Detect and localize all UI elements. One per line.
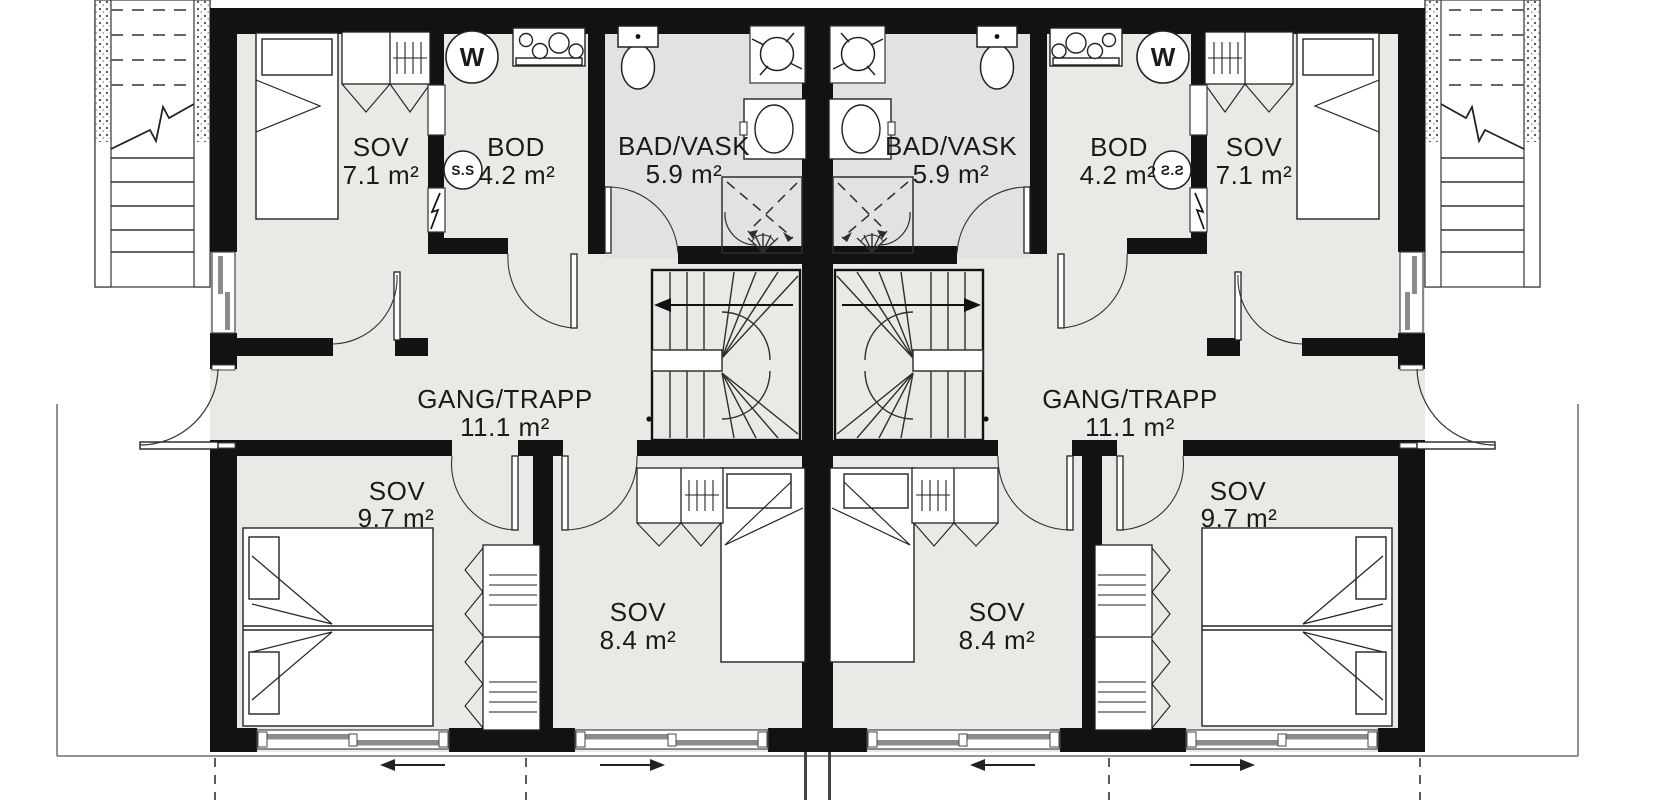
room-area-bad-left: 5.9 m²	[646, 159, 723, 189]
wall-niche	[428, 85, 445, 135]
room-label-sov-bottomleft: SOV	[369, 476, 426, 506]
room-area-sov-top-right: 7.1 m²	[1216, 160, 1293, 190]
room-area-gang-right: 11.1 m²	[1085, 412, 1175, 442]
room-label-bod-right: BOD	[1090, 132, 1148, 162]
boundary-dashed-lines	[215, 758, 526, 800]
electrical-panel-icon	[428, 188, 445, 232]
bed-double	[243, 528, 433, 726]
room-area-gang-left: 11.1 m²	[460, 412, 550, 442]
room-label-bad-left: BAD/VASK	[618, 131, 750, 161]
room-label-sov-top-left: SOV	[353, 132, 410, 162]
room-area-sov-mid-right: 8.4 m²	[959, 625, 1036, 655]
vent-fan-icon	[750, 26, 805, 83]
room-label-gang-right: GANG/TRAPP	[1042, 384, 1217, 414]
room-label-bod-left: BOD	[487, 132, 545, 162]
terrace-divider-fence	[804, 752, 807, 800]
bottom-window-left	[257, 730, 449, 749]
room-label-gang-left: GANG/TRAPP	[417, 384, 592, 414]
water-heater-label-right: W	[1151, 42, 1176, 72]
room-area-bod-right: 4.2 m²	[1080, 160, 1157, 190]
floor-plan-drawing: SOV 7.1 m² BOD 4.2 m² BAD/VASK 5.9 m² GA…	[0, 0, 1670, 800]
bed-single-bottom	[721, 468, 805, 662]
room-area-sov-top-left: 7.1 m²	[343, 160, 420, 190]
exterior-staircase	[95, 0, 210, 287]
window-slide-arrows	[380, 759, 665, 771]
fuse-cabinet-label-right: S.S	[1160, 163, 1183, 178]
room-area-sov-mid-left: 8.4 m²	[600, 625, 677, 655]
fuse-cabinet-label-left: S.S	[451, 163, 474, 178]
room-label-sov-mid-right: SOV	[969, 597, 1026, 627]
bottom-window-mid	[575, 730, 768, 749]
stove-icon	[513, 28, 585, 66]
toilet-icon	[618, 26, 658, 89]
room-label-sov-bottomright: SOV	[1210, 476, 1267, 506]
side-window	[212, 252, 235, 333]
room-label-sov-mid-left: SOV	[610, 597, 667, 627]
room-label-bad-right: BAD/VASK	[885, 131, 1017, 161]
bed-single-top	[256, 33, 338, 219]
room-area-bad-right: 5.9 m²	[913, 159, 990, 189]
room-label-sov-top-right: SOV	[1226, 132, 1283, 162]
water-heater-label-left: W	[460, 42, 485, 72]
room-area-bod-left: 4.2 m²	[479, 160, 556, 190]
floor-plan-page: SOV 7.1 m² BOD 4.2 m² BAD/VASK 5.9 m² GA…	[0, 0, 1670, 800]
room-area-sov-bottomright: 9.7 m²	[1201, 503, 1278, 533]
room-area-sov-bottomleft: 9.7 m²	[358, 503, 435, 533]
